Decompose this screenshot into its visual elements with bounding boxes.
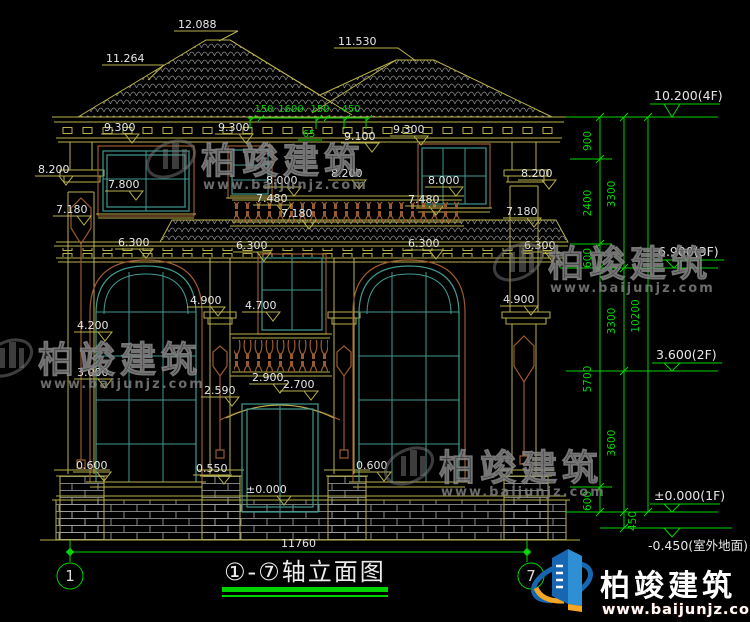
label-right-ridge: 11.530 [338, 35, 377, 48]
label-eave-left: 9.300 [104, 121, 136, 134]
dim-65: 65 [303, 129, 316, 140]
label-railbtm-right: 7.180 [506, 205, 538, 218]
label-capital-left: 8.200 [38, 163, 70, 176]
dim-450b: 450 [627, 511, 639, 531]
brand-logo: 柏竣建筑 www.baijunjz.com [528, 549, 750, 618]
watermark-name: 柏竣建筑 [38, 340, 202, 381]
title-underline-thick [222, 587, 388, 592]
watermark-name: 柏竣建筑 [548, 244, 712, 285]
cad-elevation-screenshot: 12.088 11.264 11.530 9.300 9.300 9.300 9… [0, 0, 750, 622]
label-sill2f-mid: 4.700 [245, 299, 277, 312]
watermark-bottom: 柏竣建筑 www.baijunjz.com [380, 441, 606, 500]
label-rail3f-right: 7.480 [408, 193, 440, 206]
axis-number-1: 1 [65, 567, 75, 585]
label-cap2f-left: 4.900 [190, 294, 222, 307]
dim-3300b: 3300 [606, 308, 618, 335]
brand-name: 柏竣建筑 [600, 569, 736, 604]
dim-450: 450 [341, 104, 360, 115]
dim-150a: 150 [254, 104, 273, 115]
watermark-url: www.baijunjz.com [550, 281, 715, 296]
level-1f: ±0.000(1F) [654, 488, 725, 503]
title-underline-thin [222, 595, 388, 597]
label-eave-right: 9.300 [393, 123, 425, 136]
label-capital-right: 8.200 [521, 167, 553, 180]
logo-building-side-icon [568, 549, 582, 606]
watermark-url: www.baijunjz.com [40, 377, 205, 392]
label-arch-left-upper: 4.200 [77, 319, 109, 332]
dim-900: 900 [582, 131, 594, 151]
entrance-pilaster-right [328, 258, 360, 474]
window-2f-center [258, 254, 326, 334]
level-markers: 10.200(4F) 6.900(3F) 3.600(2F) ±0.000(1F… [648, 88, 748, 553]
balustrade-2f-center [230, 334, 332, 376]
label-door-spring: 2.590 [204, 384, 236, 397]
dim-150b: 150 [310, 104, 329, 115]
label-band-mid: 6.300 [236, 239, 268, 252]
title-block: ①-⑦轴立面图 [222, 558, 388, 597]
label-railbtm-left: 7.180 [56, 203, 88, 216]
label-left-slope: 11.264 [106, 52, 145, 65]
level-ground: -0.450(室外地面) [648, 538, 748, 553]
label-sill3f-left: 7.800 [108, 178, 140, 191]
watermark-logo-icon [380, 441, 439, 492]
label-door-top: 2.900 [252, 371, 284, 384]
watermark-logo-icon [0, 333, 37, 384]
label-band-left: 6.300 [118, 236, 150, 249]
watermark-name: 柏竣建筑 [439, 448, 603, 489]
dim-1600: 1600 [278, 104, 303, 115]
label-cap2f-right: 4.900 [503, 293, 535, 306]
watermark-right: 柏竣建筑 www.baijunjz.com [489, 237, 715, 296]
entrance-pilaster-left [204, 258, 236, 474]
logo-building-icon [552, 549, 568, 604]
dim-11760: 11760 [281, 537, 316, 550]
dim-3300a: 3300 [606, 181, 618, 208]
label-sill1f-left: 0.600 [76, 459, 108, 472]
label-rail3f-left: 7.480 [256, 192, 288, 205]
watermark-center: 柏竣建筑 www.baijunjz.com [142, 134, 368, 193]
elevation-drawing: 12.088 11.264 11.530 9.300 9.300 9.300 9… [0, 0, 750, 622]
label-railbtm-mid: 7.180 [281, 207, 313, 220]
drawing-title: ①-⑦轴立面图 [224, 558, 386, 586]
label-band-right: 6.300 [408, 237, 440, 250]
watermark-url: www.baijunjz.com [441, 485, 606, 500]
label-floor-zero: ±0.000 [246, 483, 287, 496]
label-door-arch: 2.700 [283, 378, 315, 391]
label-ridge: 12.088 [178, 18, 217, 31]
brand-url: www.baijunjz.com [602, 602, 750, 618]
level-2f: 3.600(2F) [656, 347, 717, 362]
label-eave-mid: 9.300 [218, 121, 250, 134]
dim-2400: 2400 [582, 190, 594, 217]
dim-3600: 3600 [606, 430, 618, 457]
dim-10200-total: 10200 [630, 299, 642, 332]
label-sill1f-door: 0.550 [196, 462, 228, 475]
watermark-url: www.baijunjz.com [203, 178, 368, 193]
watermark-left: 柏竣建筑 www.baijunjz.com [0, 333, 205, 392]
watermark-name: 柏竣建筑 [201, 141, 365, 182]
level-4f: 10.200(4F) [654, 88, 723, 103]
dim-5700: 5700 [582, 366, 594, 393]
label-sill3f-right: 8.000 [428, 174, 460, 187]
label-sill1f-right: 0.600 [356, 459, 388, 472]
watermark-logo-icon [142, 134, 201, 185]
